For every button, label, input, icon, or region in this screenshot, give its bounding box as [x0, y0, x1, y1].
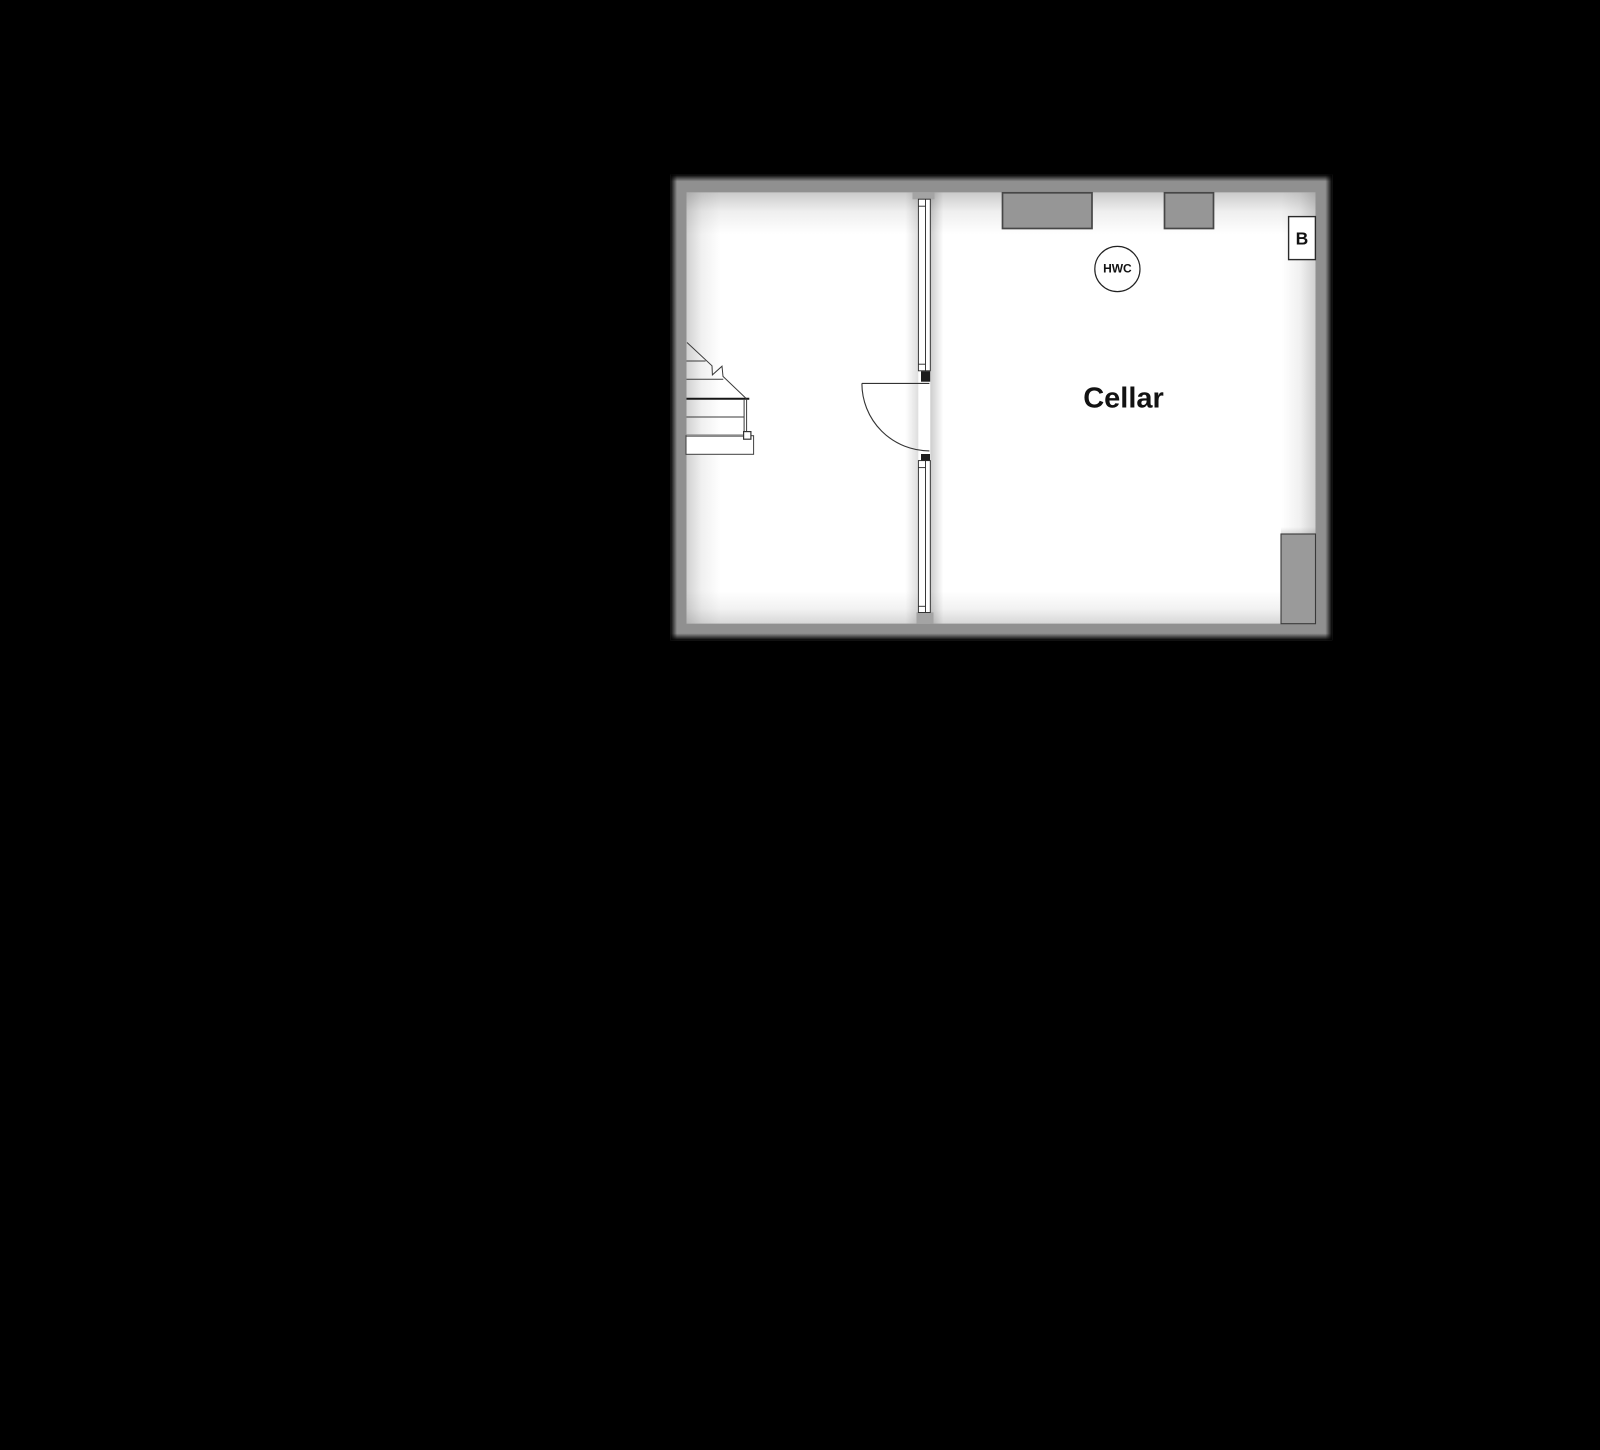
svg-text:Cellar: Cellar: [1083, 383, 1164, 415]
svg-text:HWC: HWC: [1103, 262, 1132, 276]
svg-text:B: B: [1296, 229, 1309, 249]
